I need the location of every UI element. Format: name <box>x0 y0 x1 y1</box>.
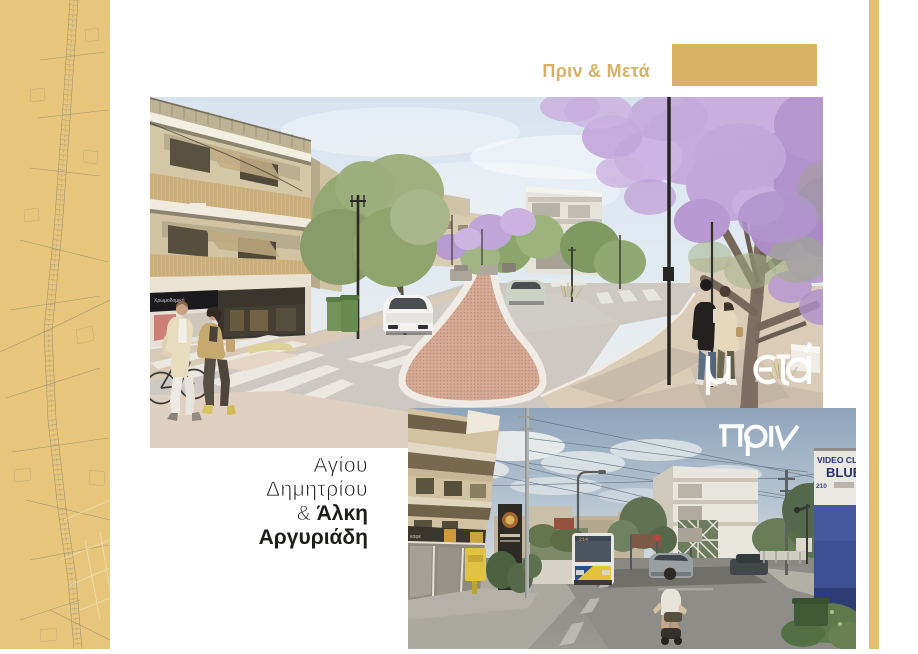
svg-text:BLUE: BLUE <box>826 465 856 480</box>
svg-text:καφε: καφε <box>410 534 422 540</box>
svg-text:210: 210 <box>816 483 827 490</box>
svg-text:VIDEO CL: VIDEO CL <box>817 455 856 465</box>
svg-text:214: 214 <box>579 537 588 543</box>
